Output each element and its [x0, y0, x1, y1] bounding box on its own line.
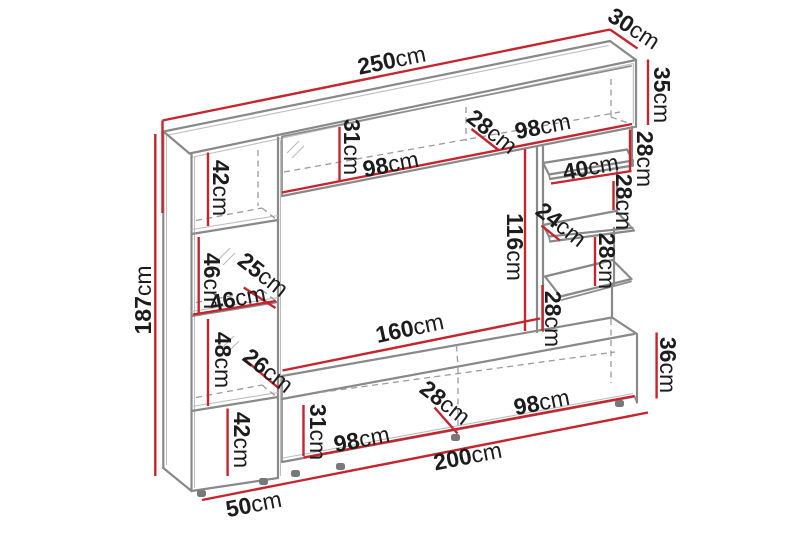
svg-text:42cm: 42cm — [208, 160, 234, 216]
svg-text:31cm: 31cm — [305, 404, 331, 460]
svg-text:28cm: 28cm — [594, 233, 620, 289]
svg-text:42cm: 42cm — [229, 412, 255, 468]
svg-text:28cm: 28cm — [540, 291, 566, 347]
svg-text:35cm: 35cm — [649, 67, 675, 123]
svg-text:28cm: 28cm — [611, 174, 637, 230]
svg-text:187cm: 187cm — [130, 265, 156, 334]
svg-text:116cm: 116cm — [502, 213, 528, 281]
svg-text:36cm: 36cm — [655, 337, 681, 393]
svg-text:48cm: 48cm — [210, 332, 236, 388]
svg-text:31cm: 31cm — [339, 119, 365, 175]
